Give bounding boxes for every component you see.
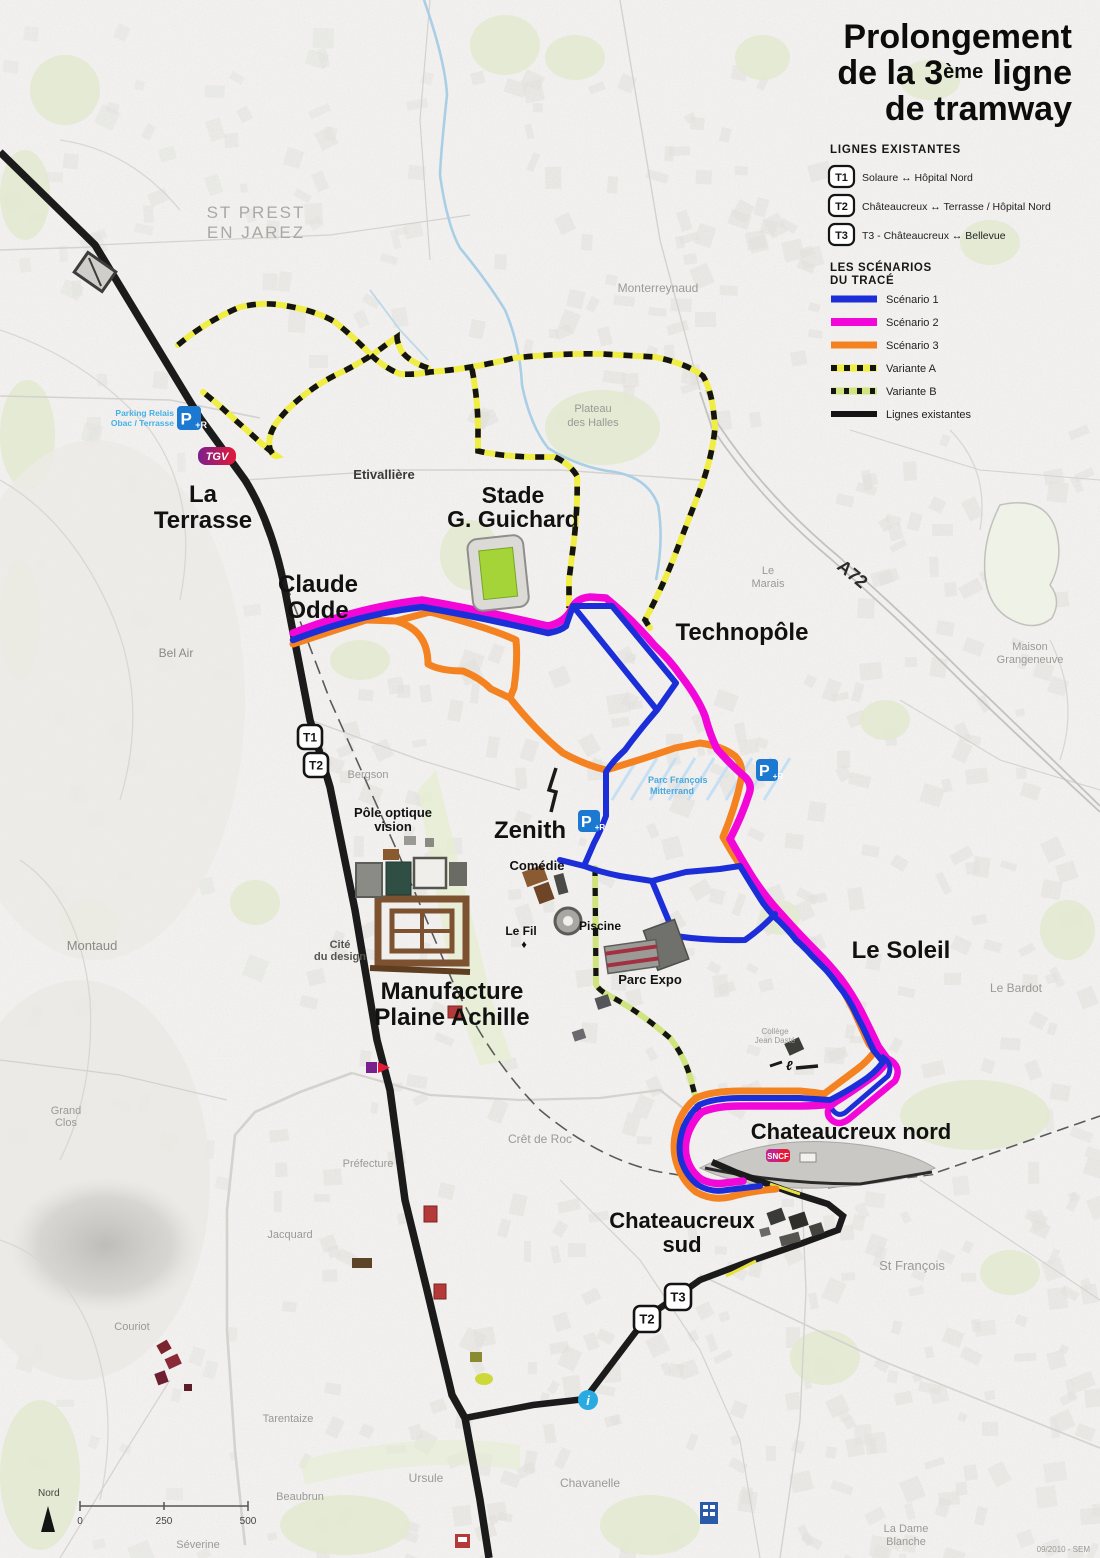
svg-text:Mitterrand: Mitterrand: [650, 786, 694, 796]
svg-text:250: 250: [156, 1516, 173, 1527]
svg-text:Le Soleil: Le Soleil: [852, 937, 951, 964]
svg-text:P: P: [759, 763, 770, 780]
svg-text:Collège: Collège: [761, 1027, 789, 1036]
svg-text:i: i: [586, 1393, 590, 1408]
svg-text:LES SCÉNARIOS: LES SCÉNARIOS: [830, 261, 932, 274]
svg-text:T3: T3: [835, 230, 848, 242]
svg-text:Couriot: Couriot: [114, 1321, 149, 1333]
svg-text:Monterreynaud: Monterreynaud: [618, 281, 699, 295]
svg-text:La Dame: La Dame: [884, 1523, 929, 1535]
svg-text:Tarentaize: Tarentaize: [263, 1413, 314, 1425]
svg-text:Clos: Clos: [55, 1117, 78, 1129]
svg-text:Prolongement: Prolongement: [843, 18, 1072, 56]
svg-text:Cité: Cité: [330, 939, 351, 951]
svg-text:G. Guichard: G. Guichard: [447, 506, 579, 532]
svg-text:Ursule: Ursule: [409, 1471, 444, 1485]
svg-text:Marais: Marais: [751, 578, 785, 590]
svg-text:SNCF: SNCF: [767, 1152, 789, 1161]
svg-text:T2: T2: [639, 1312, 654, 1327]
svg-text:Séverine: Séverine: [176, 1539, 219, 1551]
svg-text:Nord: Nord: [38, 1488, 60, 1499]
svg-text:Plaine Achille: Plaine Achille: [374, 1004, 529, 1031]
svg-text:Etivallière: Etivallière: [353, 467, 414, 482]
svg-text:Grand: Grand: [51, 1105, 82, 1117]
svg-text:Solaure ↔ Hôpital Nord: Solaure ↔ Hôpital Nord: [862, 172, 973, 184]
svg-text:Scénario 2: Scénario 2: [886, 317, 939, 329]
svg-text:Obac / Terrasse: Obac / Terrasse: [111, 418, 174, 428]
svg-text:La: La: [189, 481, 218, 508]
svg-text:Parc François: Parc François: [648, 775, 708, 785]
svg-text:Odde: Odde: [287, 597, 348, 624]
svg-text:TGV: TGV: [206, 451, 230, 463]
svg-text:Grangeneuve: Grangeneuve: [997, 654, 1064, 666]
svg-text:St François: St François: [879, 1258, 945, 1273]
svg-text:T3: T3: [670, 1290, 685, 1305]
svg-text:P: P: [581, 814, 592, 831]
svg-text:Comédie: Comédie: [510, 858, 565, 873]
svg-text:Montaud: Montaud: [67, 938, 118, 953]
svg-text:vision: vision: [374, 819, 412, 834]
svg-text:du design: du design: [314, 951, 366, 963]
svg-text:09/2010 - SEM: 09/2010 - SEM: [1037, 1545, 1091, 1554]
svg-text:Plateau: Plateau: [574, 403, 611, 415]
svg-text:T1: T1: [303, 730, 317, 744]
svg-text:+R: +R: [773, 772, 784, 781]
svg-text:des Halles: des Halles: [567, 417, 619, 429]
svg-text:Variante B: Variante B: [886, 386, 937, 398]
svg-text:T2: T2: [835, 201, 848, 213]
svg-text:Bel Air: Bel Air: [159, 646, 194, 660]
svg-text:T2: T2: [309, 758, 323, 772]
svg-text:Préfecture: Préfecture: [343, 1158, 394, 1170]
svg-text:Blanche: Blanche: [886, 1536, 926, 1548]
svg-text:Claude: Claude: [278, 571, 358, 598]
svg-text:Jean Dasté: Jean Dasté: [755, 1036, 796, 1045]
svg-text:sud: sud: [662, 1232, 701, 1257]
svg-text:Chateaucreux: Chateaucreux: [609, 1208, 755, 1233]
svg-text:Le Bardot: Le Bardot: [990, 981, 1043, 995]
svg-text:Parc Expo: Parc Expo: [618, 972, 682, 987]
svg-text:P: P: [180, 410, 191, 429]
svg-text:Beaubrun: Beaubrun: [276, 1491, 324, 1503]
svg-text:LIGNES EXISTANTES: LIGNES EXISTANTES: [830, 144, 961, 156]
svg-text:Bergson: Bergson: [348, 769, 389, 781]
svg-text:Technopôle: Technopôle: [676, 619, 809, 646]
svg-text:Stade: Stade: [482, 482, 545, 508]
svg-text:EN JAREZ: EN JAREZ: [207, 223, 305, 242]
svg-text:Lignes existantes: Lignes existantes: [886, 409, 971, 421]
svg-text:Piscine: Piscine: [579, 919, 621, 933]
svg-text:+R: +R: [595, 823, 606, 832]
svg-text:Maison: Maison: [1012, 641, 1047, 653]
svg-text:Châteaucreux ↔ Terrasse / Hôpi: Châteaucreux ↔ Terrasse / Hôpital Nord: [862, 201, 1051, 213]
svg-text:+R: +R: [195, 420, 207, 430]
svg-text:Crêt de Roc: Crêt de Roc: [508, 1132, 572, 1146]
svg-text:Scénario 1: Scénario 1: [886, 294, 939, 306]
svg-text:Zenith: Zenith: [494, 817, 566, 844]
svg-text:Scénario 3: Scénario 3: [886, 340, 939, 352]
svg-text:Le Fil: Le Fil: [505, 924, 536, 938]
svg-text:500: 500: [240, 1516, 257, 1527]
svg-text:ℓ: ℓ: [786, 1058, 793, 1073]
svg-text:T3 - Châteaucreux ↔ Bellevue: T3 - Châteaucreux ↔ Bellevue: [862, 230, 1006, 242]
svg-text:T1: T1: [835, 172, 848, 184]
svg-text:Parking Relais: Parking Relais: [115, 408, 174, 418]
svg-text:Manufacture: Manufacture: [381, 978, 524, 1005]
svg-text:Variante A: Variante A: [886, 363, 937, 375]
svg-text:Le: Le: [762, 565, 774, 577]
svg-text:♦: ♦: [521, 939, 527, 951]
svg-text:Chavanelle: Chavanelle: [560, 1476, 620, 1490]
svg-text:Chateaucreux nord: Chateaucreux nord: [751, 1119, 952, 1144]
svg-text:ST PREST: ST PREST: [207, 203, 306, 222]
svg-text:Pôle optique: Pôle optique: [354, 805, 432, 820]
svg-text:DU TRACÉ: DU TRACÉ: [830, 274, 894, 287]
svg-text:Terrasse: Terrasse: [154, 507, 252, 534]
svg-text:0: 0: [77, 1516, 83, 1527]
svg-text:Jacquard: Jacquard: [267, 1229, 312, 1241]
svg-text:de tramway: de tramway: [885, 90, 1072, 128]
